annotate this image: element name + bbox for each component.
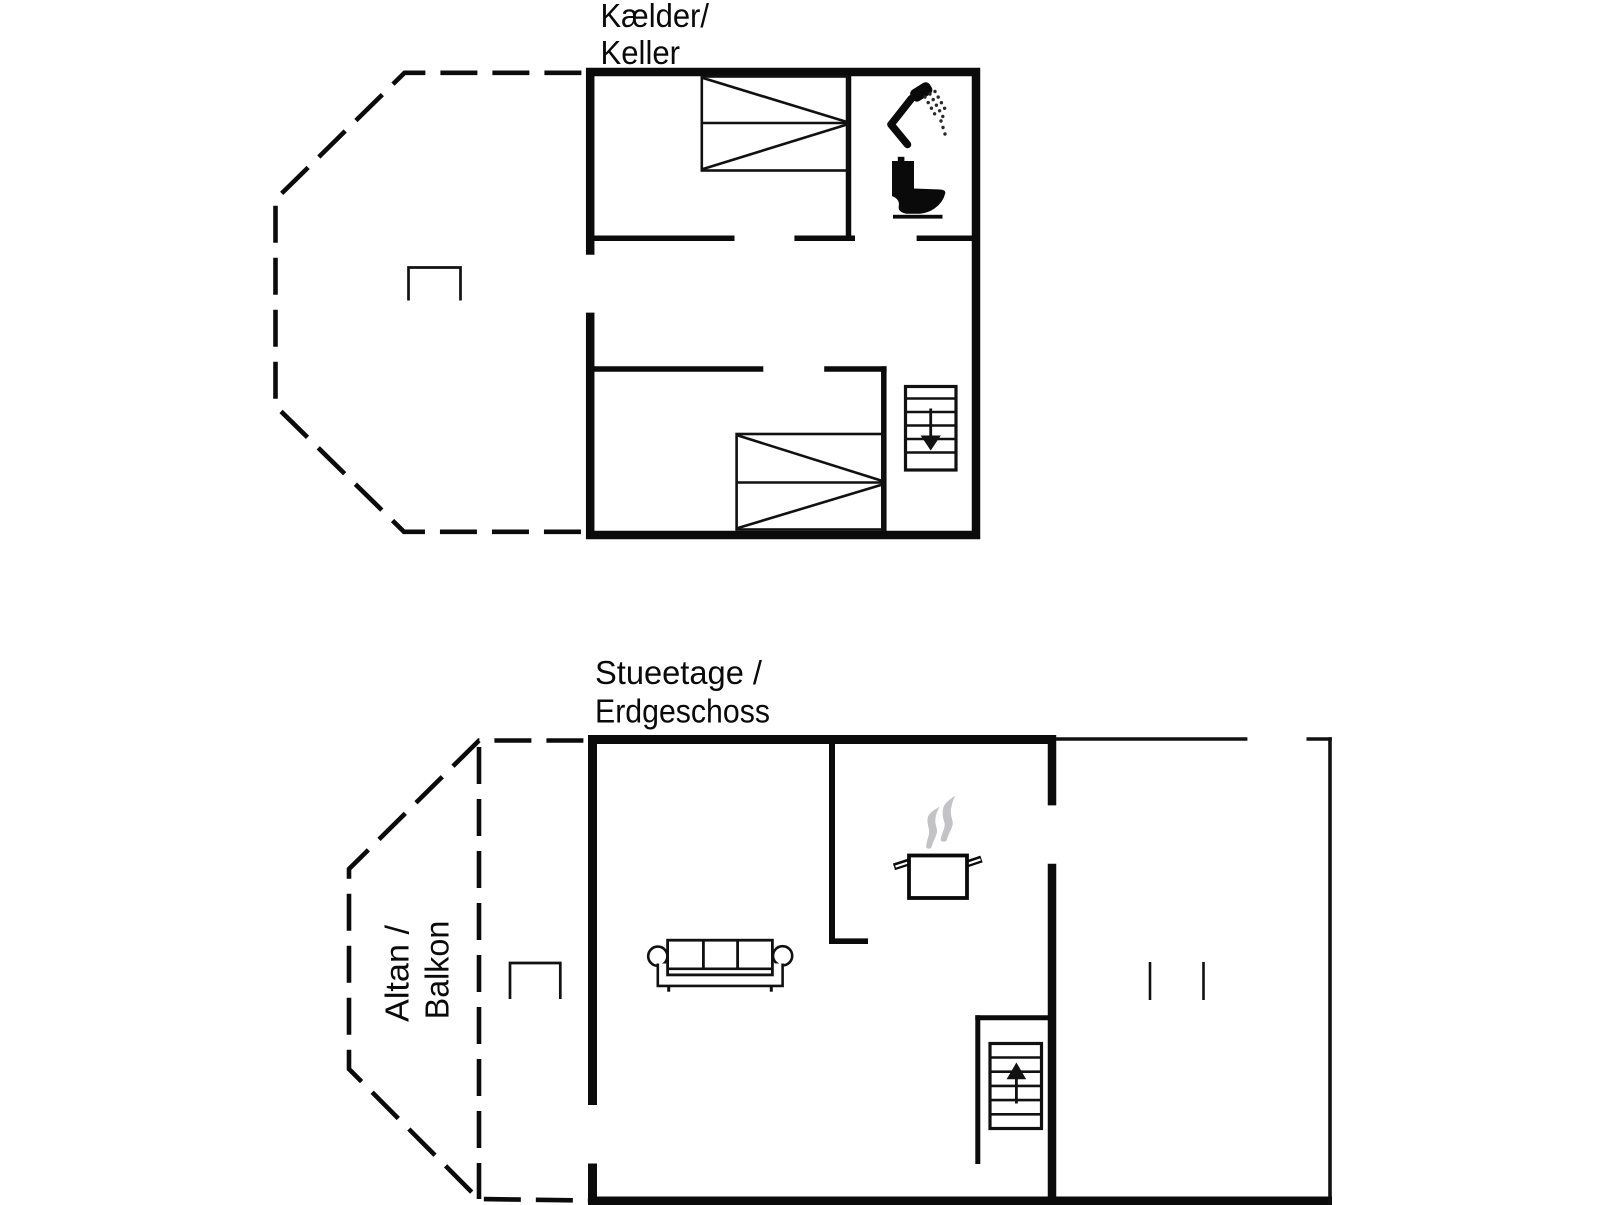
svg-text:Altan /: Altan / — [379, 924, 416, 1022]
svg-text:Stueetage /: Stueetage / — [595, 654, 763, 691]
svg-text:Erdgeschoss: Erdgeschoss — [595, 693, 770, 730]
svg-text:Kælder/: Kælder/ — [601, 0, 710, 34]
svg-text:Keller: Keller — [601, 34, 681, 71]
svg-text:Balkon: Balkon — [419, 921, 456, 1020]
